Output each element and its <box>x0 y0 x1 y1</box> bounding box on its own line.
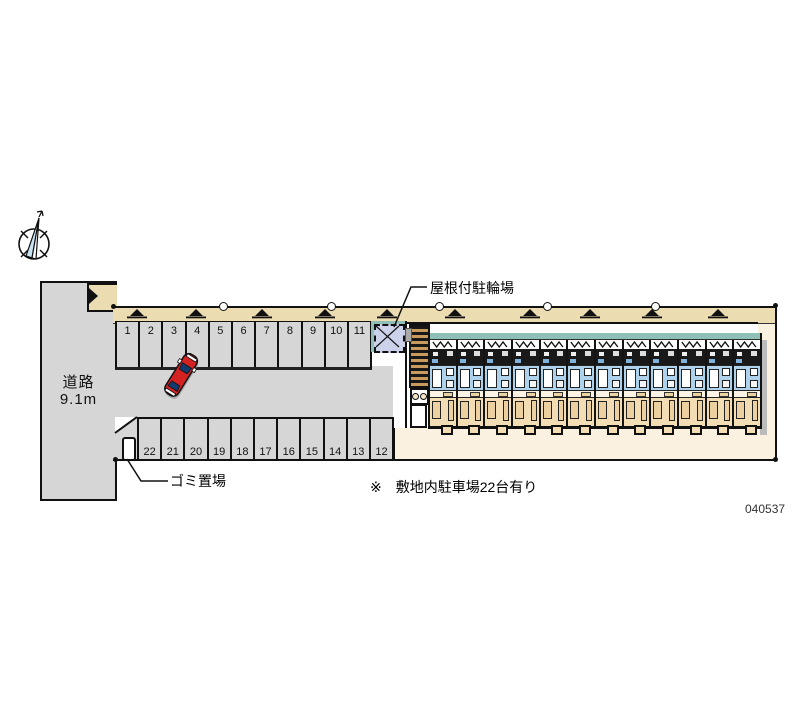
apartment-unit <box>594 340 622 426</box>
balcony-railing-icon <box>541 340 567 349</box>
balcony-railing-icon <box>596 340 622 349</box>
apartment-unit <box>649 340 677 426</box>
unit-entry-door <box>662 425 674 435</box>
parking-stall-7: 7 <box>254 322 277 367</box>
unit-entry-door <box>551 425 563 435</box>
staircase <box>409 324 430 388</box>
unit-kitchen-block <box>430 365 456 390</box>
unit-hall-block <box>596 390 622 397</box>
survey-marker-icon <box>327 302 336 311</box>
tree-symbol-icon <box>251 308 273 320</box>
bicycle-shelter-label: 屋根付駐輪場 <box>430 278 514 298</box>
unit-room-block <box>651 397 677 426</box>
stall-number: 5 <box>217 325 223 337</box>
stall-number: 9 <box>310 325 316 337</box>
boundary-corner-dot <box>111 304 116 309</box>
tree-symbol-icon <box>707 308 729 320</box>
parking-note: ※ 敷地内駐車場22台有り <box>370 477 537 497</box>
unit-room-block <box>485 397 511 426</box>
stall-number: 18 <box>236 446 248 458</box>
stall-number: 17 <box>259 446 271 458</box>
stall-number: 4 <box>194 325 200 337</box>
unit-kitchen-block <box>568 365 594 390</box>
unit-kitchen-block <box>458 365 484 390</box>
unit-entry-door <box>468 425 480 435</box>
unit-hall-block <box>430 390 456 397</box>
survey-marker-icon <box>219 302 228 311</box>
parking-stall-2: 2 <box>138 322 161 367</box>
parking-stall-6: 6 <box>231 322 254 367</box>
parking-stall-17: 17 <box>253 419 276 461</box>
unit-hall-block <box>679 390 705 397</box>
balcony-railing-icon <box>679 340 705 349</box>
parking-row-bottom: 2221201918171615141312 <box>137 417 394 461</box>
tree-symbol-icon <box>376 308 398 320</box>
stall-number: 3 <box>171 325 177 337</box>
unit-room-block <box>430 397 456 426</box>
balcony-railing-icon <box>707 340 733 349</box>
unit-room-block <box>734 397 760 426</box>
parking-stall-9: 9 <box>301 322 324 367</box>
shelter-fixture <box>405 328 412 342</box>
parking-stall-11: 11 <box>347 322 370 367</box>
stall-number: 1 <box>125 325 131 337</box>
unit-entry-door <box>717 425 729 435</box>
parking-stall-12: 12 <box>369 419 392 461</box>
building-north-wall <box>406 322 758 324</box>
balcony-railing-icon <box>624 340 650 349</box>
road-label: 道路 <box>62 374 94 391</box>
unit-room-block <box>458 397 484 426</box>
apartment-unit <box>732 340 760 426</box>
road-area: 道路 9.1m <box>40 281 117 501</box>
balcony-railing-icon <box>485 340 511 349</box>
unit-kitchen-block <box>651 365 677 390</box>
parking-stall-13: 13 <box>346 419 369 461</box>
bicycle-shelter <box>374 324 405 353</box>
parking-stall-19: 19 <box>207 419 230 461</box>
balcony-railing-icon <box>430 340 456 349</box>
apartment-unit <box>511 340 539 426</box>
stall-number: 7 <box>264 325 270 337</box>
parking-stall-20: 20 <box>183 419 206 461</box>
unit-kitchen-block <box>707 365 733 390</box>
boundary-corner-dot <box>773 303 778 308</box>
unit-bath-block <box>513 349 539 365</box>
balcony-railing-icon <box>568 340 594 349</box>
parking-stall-21: 21 <box>160 419 183 461</box>
parking-stall-1: 1 <box>117 322 138 367</box>
unit-entry-door <box>607 425 619 435</box>
unit-bath-block <box>624 349 650 365</box>
parking-stall-22: 22 <box>139 419 160 461</box>
parking-stall-5: 5 <box>208 322 231 367</box>
stall-number: 2 <box>148 325 154 337</box>
unit-bath-block <box>485 349 511 365</box>
garbage-area-label: ゴミ置場 <box>170 471 226 491</box>
balcony-railing-icon <box>651 340 677 349</box>
unit-hall-block <box>485 390 511 397</box>
unit-room-block <box>596 397 622 426</box>
unit-bath-block <box>596 349 622 365</box>
tree-symbol-icon <box>185 308 207 320</box>
stall-number: 22 <box>143 446 155 458</box>
apartment-unit <box>705 340 733 426</box>
unit-bath-block <box>707 349 733 365</box>
tree-symbol-icon <box>126 308 148 320</box>
apartment-unit <box>677 340 705 426</box>
unit-entry-door <box>496 425 508 435</box>
parking-stall-10: 10 <box>324 322 347 367</box>
site-boundary-east <box>775 306 777 461</box>
stall-number: 10 <box>330 325 342 337</box>
unit-hall-block <box>458 390 484 397</box>
tree-symbol-icon <box>579 308 601 320</box>
unit-kitchen-block <box>624 365 650 390</box>
survey-marker-icon <box>543 302 552 311</box>
unit-row <box>430 340 760 429</box>
unit-hall-block <box>734 390 760 397</box>
stall-number: 6 <box>240 325 246 337</box>
parking-stall-16: 16 <box>276 419 299 461</box>
unit-bath-block <box>458 349 484 365</box>
unit-hall-block <box>541 390 567 397</box>
unit-hall-block <box>513 390 539 397</box>
garbage-bin <box>122 437 136 461</box>
stall-number: 21 <box>167 446 179 458</box>
parking-stall-8: 8 <box>277 322 300 367</box>
stall-number: 13 <box>352 446 364 458</box>
stall-number: 12 <box>375 446 387 458</box>
unit-hall-block <box>624 390 650 397</box>
unit-hall-block <box>568 390 594 397</box>
stall-number: 19 <box>213 446 225 458</box>
unit-kitchen-block <box>734 365 760 390</box>
stall-number: 20 <box>190 446 202 458</box>
unit-room-block <box>624 397 650 426</box>
utility-box <box>410 388 429 405</box>
stall-number: 8 <box>287 325 293 337</box>
parking-stall-14: 14 <box>323 419 346 461</box>
stall-number: 15 <box>306 446 318 458</box>
unit-hall-block <box>707 390 733 397</box>
storage-box <box>410 404 427 428</box>
unit-kitchen-block <box>513 365 539 390</box>
apartment-unit <box>456 340 484 426</box>
north-arrow-icon <box>8 210 60 268</box>
unit-kitchen-block <box>541 365 567 390</box>
unit-entry-door <box>634 425 646 435</box>
apartment-unit <box>483 340 511 426</box>
site-plan: 道路 9.1m 1234567891011 222120191817161514… <box>0 0 800 727</box>
tree-symbol-icon <box>519 308 541 320</box>
unit-entry-door <box>441 425 453 435</box>
unit-bath-block <box>568 349 594 365</box>
unit-bath-block <box>651 349 677 365</box>
stall-number: 16 <box>283 446 295 458</box>
unit-room-block <box>513 397 539 426</box>
balcony-strip <box>430 333 760 340</box>
stall-number: 14 <box>329 446 341 458</box>
survey-marker-icon <box>651 302 660 311</box>
unit-bath-block <box>430 349 456 365</box>
unit-bath-block <box>541 349 567 365</box>
site-boundary-south <box>113 459 777 461</box>
unit-kitchen-block <box>679 365 705 390</box>
apartment-unit <box>539 340 567 426</box>
parking-row-top: 1234567891011 <box>115 321 372 370</box>
unit-kitchen-block <box>596 365 622 390</box>
unit-entry-door <box>690 425 702 435</box>
parking-stall-18: 18 <box>230 419 253 461</box>
survey-marker-icon <box>435 302 444 311</box>
unit-hall-block <box>651 390 677 397</box>
unit-entry-door <box>745 425 757 435</box>
balcony-railing-icon <box>458 340 484 349</box>
apartment-unit <box>566 340 594 426</box>
unit-entry-door <box>524 425 536 435</box>
stall-number: 11 <box>354 325 365 337</box>
balcony-railing-icon <box>734 340 760 349</box>
unit-room-block <box>568 397 594 426</box>
balcony-railing-icon <box>513 340 539 349</box>
tree-symbol-icon <box>444 308 466 320</box>
apartment-unit <box>430 340 456 426</box>
parking-stall-15: 15 <box>299 419 322 461</box>
unit-entry-door <box>579 425 591 435</box>
apartment-unit <box>622 340 650 426</box>
unit-room-block <box>707 397 733 426</box>
unit-room-block <box>541 397 567 426</box>
unit-room-block <box>679 397 705 426</box>
unit-kitchen-block <box>485 365 511 390</box>
unit-bath-block <box>734 349 760 365</box>
road-width-label: 9.1m <box>60 391 97 408</box>
apartment-building <box>428 333 762 429</box>
unit-bath-block <box>679 349 705 365</box>
plan-number: 040537 <box>745 502 785 516</box>
